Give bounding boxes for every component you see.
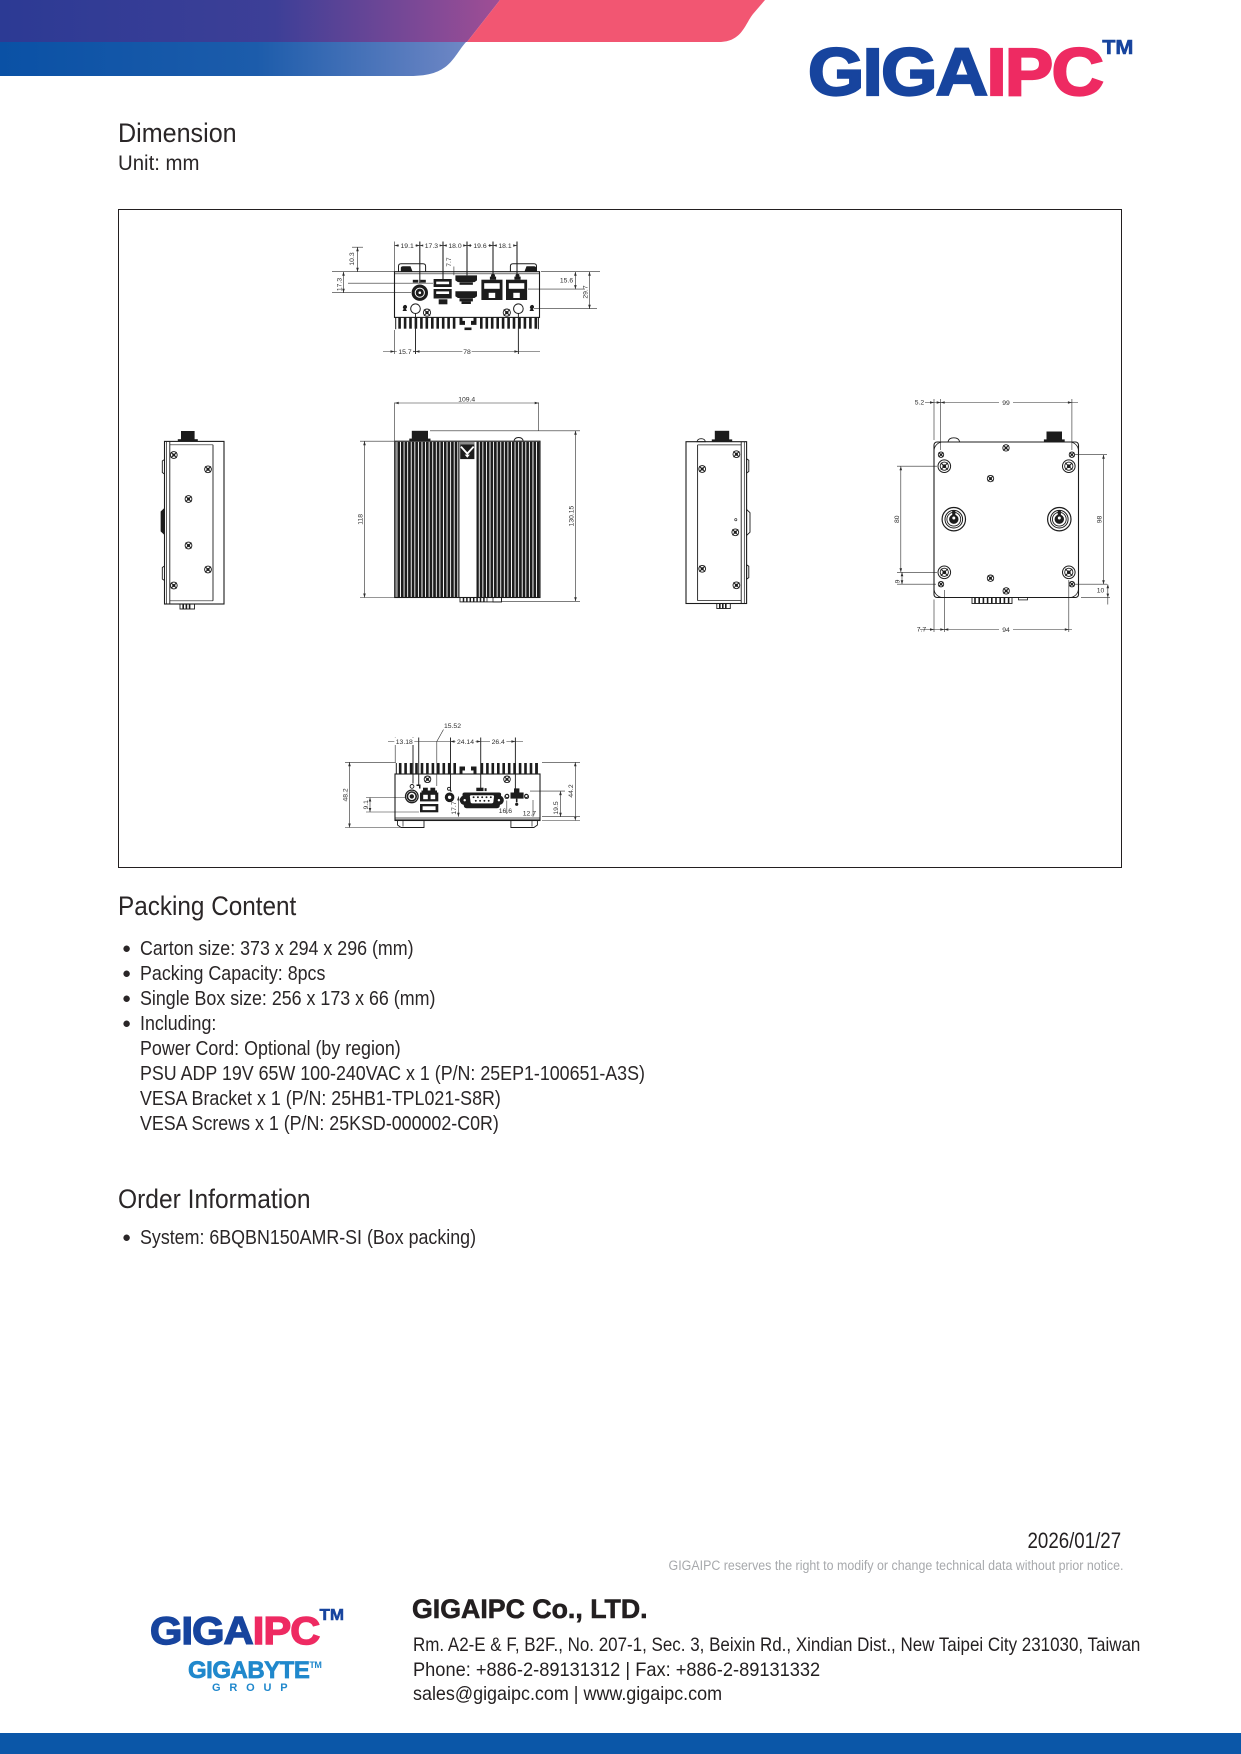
svg-text:12.7: 12.7	[523, 811, 536, 818]
svg-text:10.3: 10.3	[349, 252, 356, 265]
svg-text:24.14: 24.14	[457, 739, 474, 746]
svg-text:19.1: 19.1	[401, 243, 414, 250]
svg-text:17.7: 17.7	[451, 801, 458, 814]
svg-text:29.7: 29.7	[582, 285, 589, 298]
svg-text:15.6: 15.6	[560, 278, 573, 285]
svg-text:94: 94	[1002, 627, 1010, 634]
svg-text:109.4: 109.4	[458, 396, 475, 403]
svg-text:17.3: 17.3	[425, 243, 438, 250]
svg-text:9: 9	[895, 579, 902, 583]
svg-text:18.1: 18.1	[498, 243, 511, 250]
svg-text:16.6: 16.6	[499, 808, 512, 815]
svg-text:98: 98	[1097, 515, 1104, 523]
svg-text:19.5: 19.5	[553, 801, 560, 814]
svg-text:15.52: 15.52	[444, 723, 461, 730]
svg-text:15.7: 15.7	[398, 349, 411, 356]
svg-text:13.18: 13.18	[396, 739, 413, 746]
svg-text:18.0: 18.0	[448, 243, 461, 250]
svg-text:7.7: 7.7	[917, 627, 927, 634]
svg-text:7.7: 7.7	[446, 257, 453, 267]
svg-text:5.2: 5.2	[915, 400, 925, 407]
svg-text:48.2: 48.2	[343, 788, 350, 801]
svg-text:19.6: 19.6	[473, 243, 486, 250]
svg-text:44.2: 44.2	[568, 784, 575, 797]
svg-text:78: 78	[463, 349, 471, 356]
svg-text:26.4: 26.4	[492, 739, 505, 746]
svg-text:130.15: 130.15	[569, 505, 576, 526]
svg-text:10: 10	[1097, 588, 1105, 595]
svg-text:80: 80	[894, 515, 901, 523]
svg-text:99: 99	[1002, 400, 1010, 407]
svg-text:9.1: 9.1	[363, 800, 370, 810]
svg-text:118: 118	[358, 514, 365, 525]
svg-text:17.3: 17.3	[337, 278, 344, 291]
